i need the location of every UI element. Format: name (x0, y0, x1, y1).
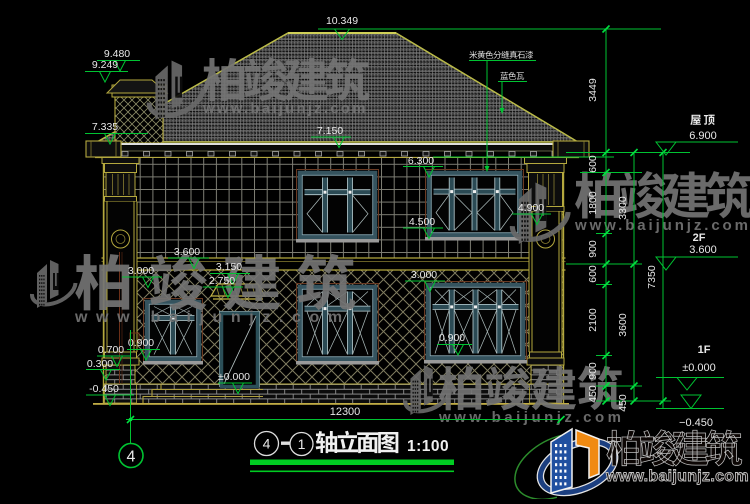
svg-text:12300: 12300 (330, 406, 361, 418)
svg-text:10.349: 10.349 (326, 15, 358, 27)
svg-text:6.300: 6.300 (408, 155, 434, 167)
svg-text:3600: 3600 (617, 313, 629, 337)
svg-text:2F: 2F (693, 232, 706, 244)
svg-text:450: 450 (617, 394, 629, 412)
svg-text:450: 450 (587, 385, 599, 403)
svg-text:2100: 2100 (587, 308, 599, 332)
svg-text:±0.000: ±0.000 (218, 371, 250, 383)
svg-text:3.000: 3.000 (128, 265, 154, 277)
svg-text:www.baijunjz.com: www.baijunjz.com (74, 309, 351, 326)
svg-text:www.baijunjz.com: www.baijunjz.com (574, 217, 750, 234)
svg-text:3449: 3449 (587, 78, 599, 102)
svg-text:−0.450: −0.450 (679, 417, 713, 429)
svg-text:3.150: 3.150 (216, 261, 242, 273)
svg-text:1: 1 (298, 436, 306, 452)
svg-text:900: 900 (587, 362, 599, 380)
svg-text:900: 900 (587, 240, 599, 258)
svg-text:1F: 1F (698, 344, 711, 356)
svg-text:3.000: 3.000 (411, 269, 437, 281)
svg-text:-0.450: -0.450 (89, 383, 119, 395)
svg-text:9.249: 9.249 (92, 59, 118, 71)
svg-text:www.baijunjz.com: www.baijunjz.com (202, 100, 368, 117)
svg-text:7350: 7350 (646, 265, 658, 289)
svg-text:0.900: 0.900 (128, 337, 154, 349)
svg-text:4.900: 4.900 (518, 202, 544, 214)
svg-text:0.300: 0.300 (87, 358, 113, 370)
svg-text:600: 600 (587, 155, 599, 173)
svg-text:0.900: 0.900 (439, 332, 465, 344)
svg-text:0.700: 0.700 (98, 344, 124, 356)
svg-text:4: 4 (127, 449, 136, 466)
svg-text:3.600: 3.600 (174, 246, 200, 258)
svg-text:4: 4 (263, 436, 271, 452)
svg-text:2.750: 2.750 (209, 275, 235, 287)
svg-text:www.baijunjz.com: www.baijunjz.com (605, 468, 749, 485)
svg-text:4.500: 4.500 (409, 216, 435, 228)
svg-text:600: 600 (587, 265, 599, 283)
svg-text:1800: 1800 (587, 191, 599, 215)
svg-text:3300: 3300 (617, 196, 629, 220)
svg-text:±0.000: ±0.000 (682, 362, 716, 374)
svg-text:7.150: 7.150 (317, 125, 343, 137)
svg-text:www.baijunjz.com: www.baijunjz.com (438, 409, 624, 426)
svg-text:7.335: 7.335 (92, 121, 118, 133)
svg-text:1:100: 1:100 (407, 438, 449, 455)
svg-text:6.900: 6.900 (689, 130, 717, 142)
svg-text:3.600: 3.600 (689, 244, 717, 256)
